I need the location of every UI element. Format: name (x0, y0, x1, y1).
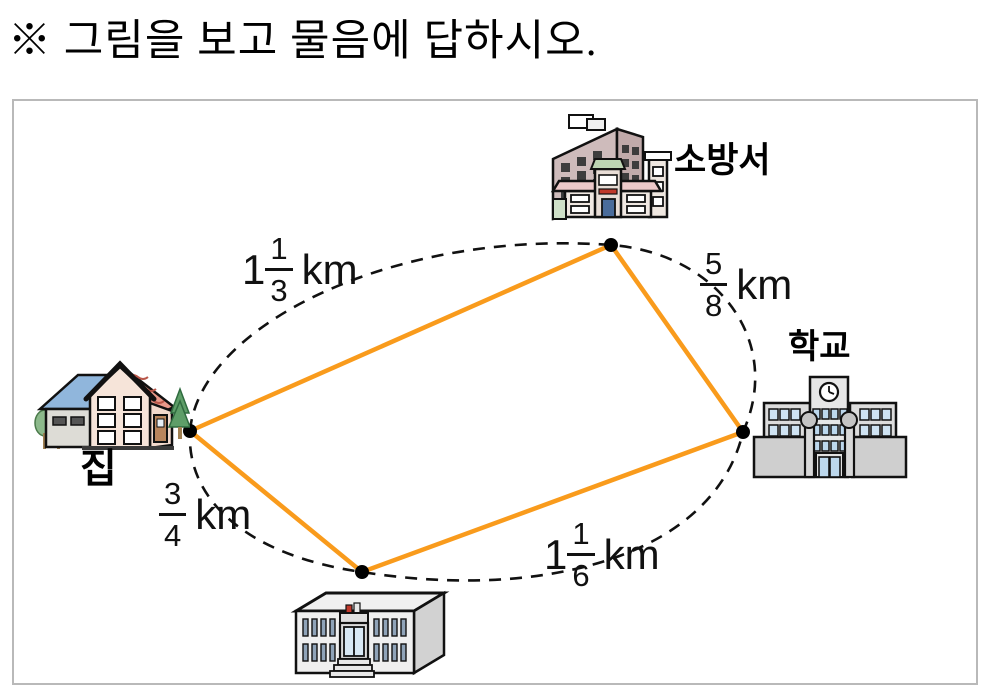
distance-whole: 1 (242, 249, 265, 291)
distance-unit: km (302, 249, 358, 291)
distance-unit: km (604, 534, 660, 576)
distance-fraction: 1 6 (567, 517, 594, 593)
distance-fraction: 5 8 (700, 247, 727, 323)
fire-station-icon (529, 111, 679, 235)
fraction-numerator: 1 (265, 232, 292, 271)
fraction-denominator: 6 (572, 556, 589, 592)
distance-house-fire: 1 1 3 km (242, 232, 358, 308)
fraction-denominator: 3 (270, 271, 287, 307)
fraction-denominator: 8 (705, 286, 722, 322)
fraction-numerator: 3 (159, 477, 186, 516)
distance-unit: km (195, 494, 251, 536)
office-building-icon (282, 583, 456, 683)
fraction-denominator: 4 (164, 516, 181, 552)
distance-fraction: 1 3 (265, 232, 292, 308)
house-label: 집 (80, 449, 117, 489)
distance-fraction: 3 4 (159, 477, 186, 553)
point-office (355, 565, 369, 579)
distance-unit: km (736, 264, 792, 306)
fraction-numerator: 5 (700, 247, 727, 286)
fire-station-label: 소방서 (674, 143, 771, 178)
distance-house-office: 3 4 km (159, 477, 251, 553)
fraction-numerator: 1 (567, 517, 594, 556)
distance-whole: 1 (544, 534, 567, 576)
school-icon (750, 373, 910, 488)
distance-office-school: 1 1 6 km (544, 517, 660, 593)
point-fire-station (604, 238, 618, 252)
instruction-heading: ※ 그림을 보고 물음에 답하시오. (8, 6, 968, 68)
point-school (736, 425, 750, 439)
distance-fire-school: 5 8 km (700, 247, 792, 323)
figure-frame: 소방서 학교 집 1 1 3 km 5 8 km 3 4 km 1 1 6 km (12, 99, 978, 685)
school-label: 학교 (788, 330, 851, 364)
